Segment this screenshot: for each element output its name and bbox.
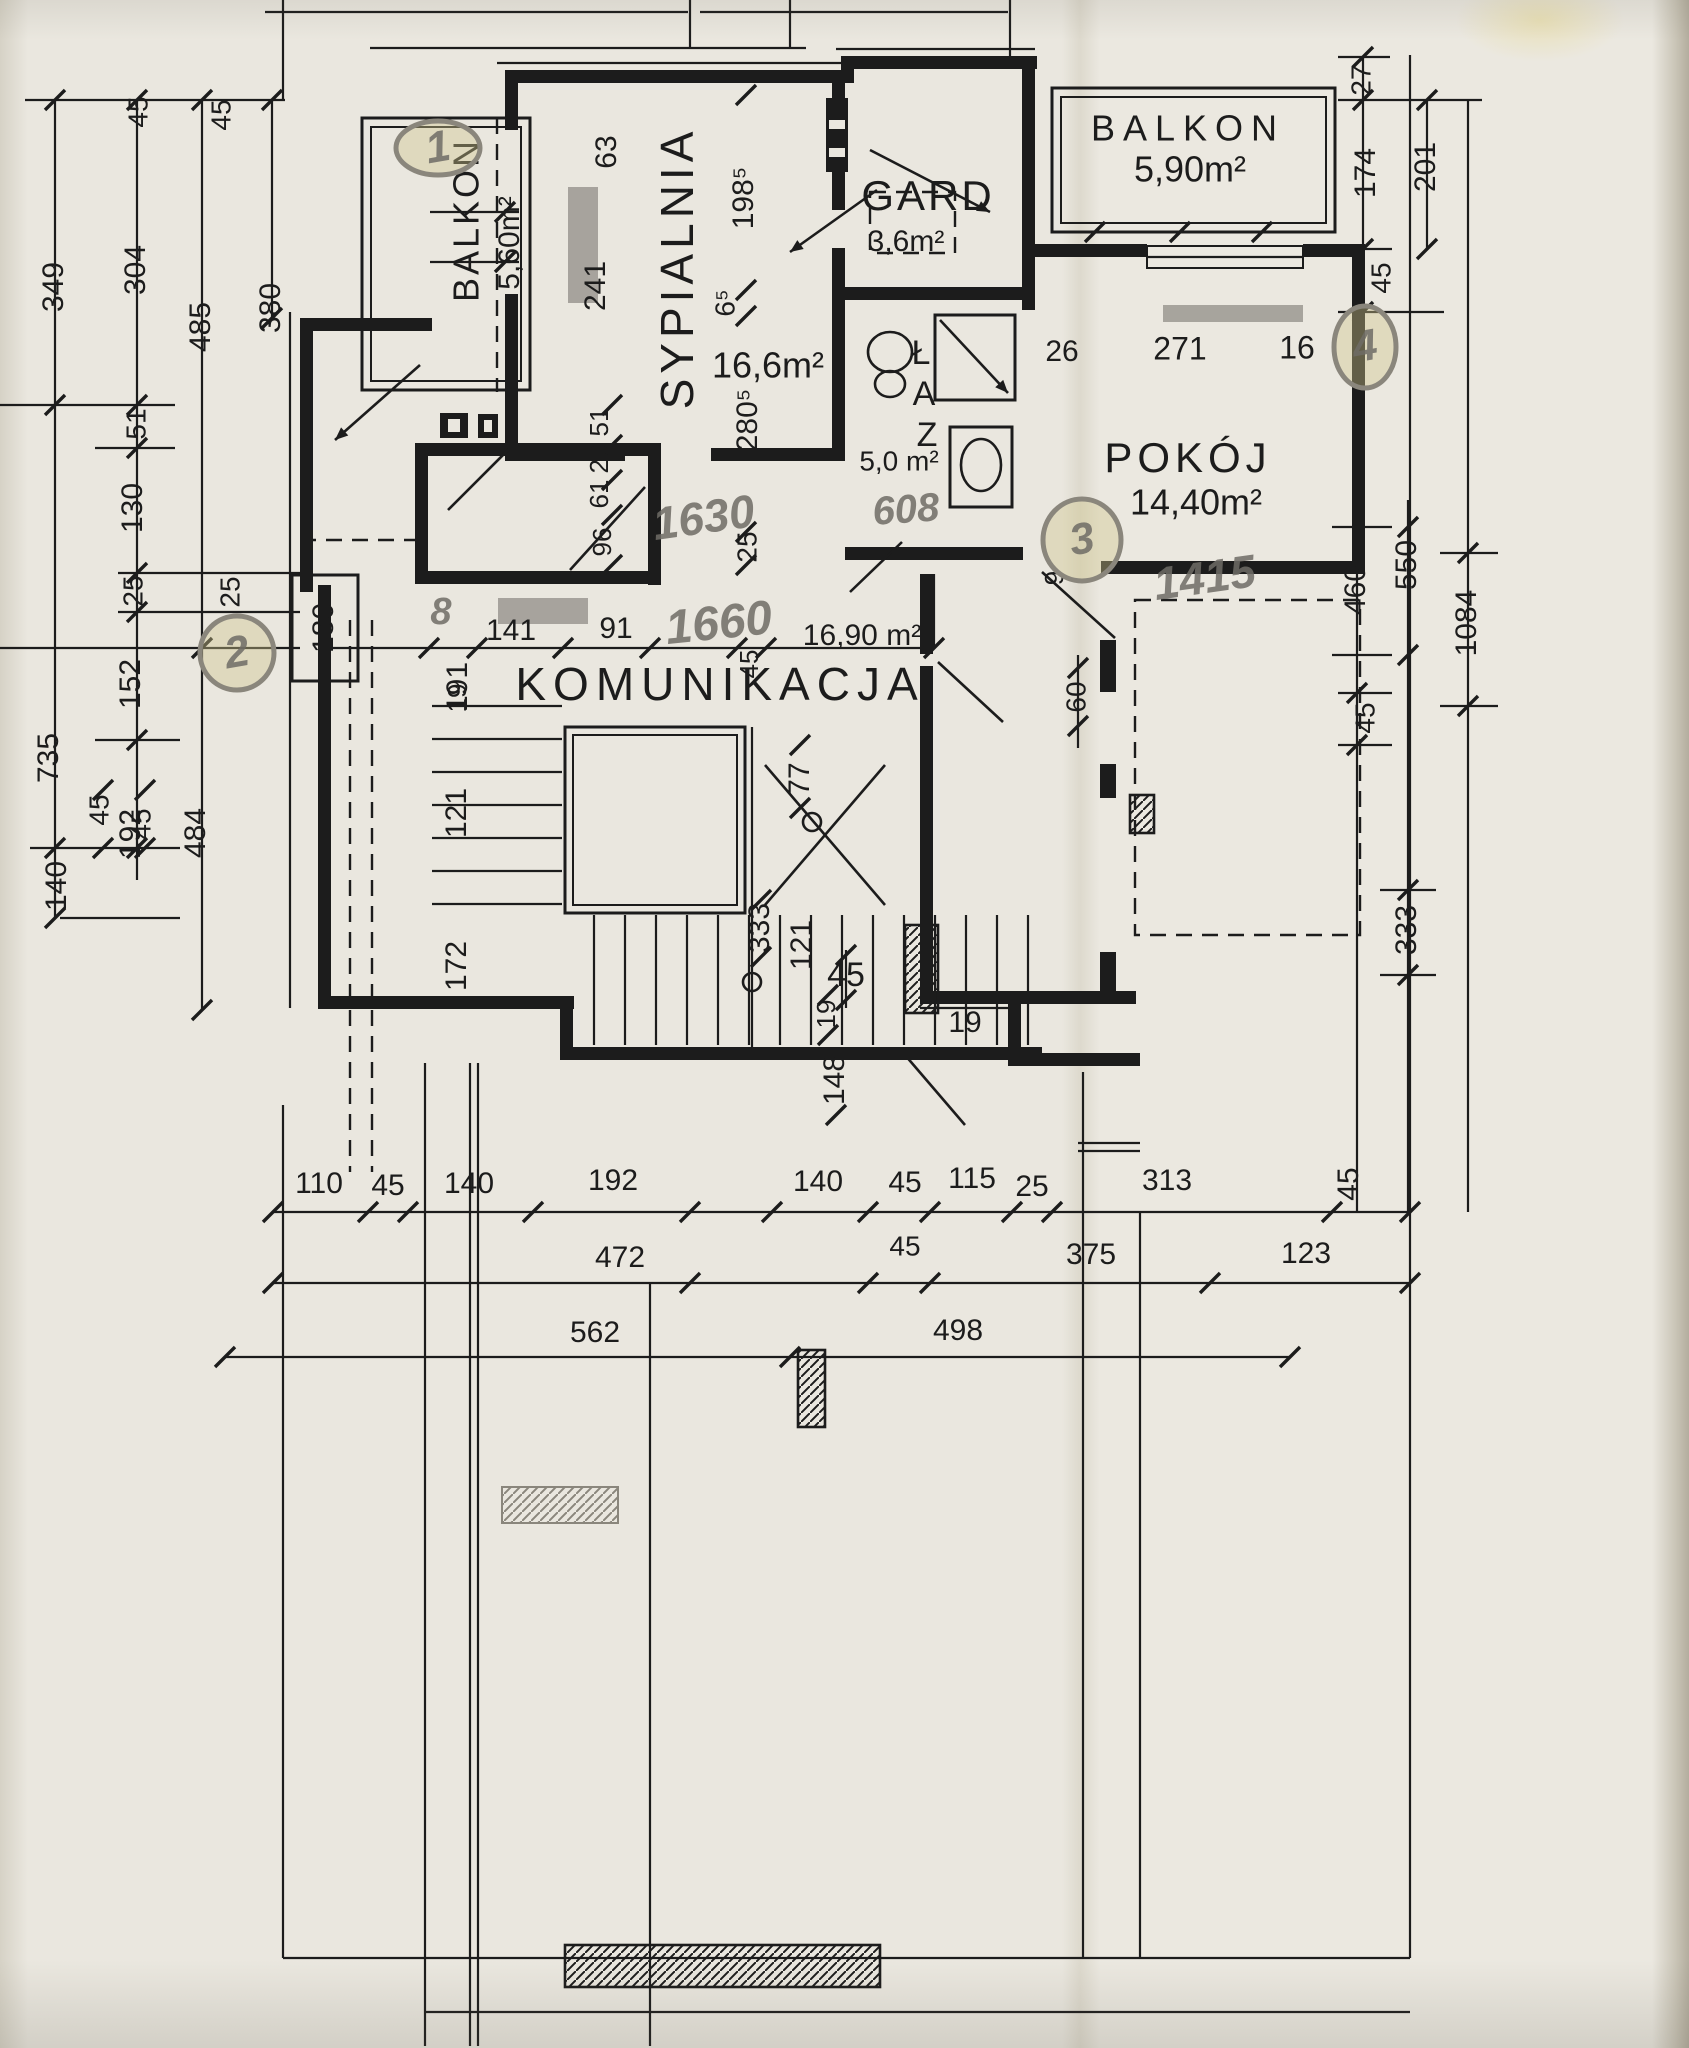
dim-label-198⁵: 198⁵: [727, 167, 760, 230]
dim-label-304: 304: [119, 245, 152, 295]
wall: [415, 571, 661, 584]
arrow-head: [790, 240, 804, 252]
solid-block-inner: [829, 148, 845, 157]
dim-label-141: 141: [486, 614, 536, 647]
hand-note-608: 608: [871, 485, 941, 534]
fixture-ellipse: [803, 813, 821, 831]
dim-label-60: 60: [1060, 681, 1091, 712]
dim-tick: [790, 735, 810, 755]
scanned-floor-plan-page: BALKON5,60m²SYPIALNIA16,6m²GARD3,6m²BALK…: [0, 0, 1689, 2048]
solid-block-inner: [484, 420, 492, 432]
dim-label-96: 96: [587, 528, 617, 557]
door-swing-line: [905, 1055, 965, 1125]
thin-outline: [565, 727, 745, 913]
dim-label-140: 140: [793, 1165, 843, 1198]
dim-label-115: 115: [948, 1162, 996, 1195]
door-swing-line: [448, 448, 510, 510]
hand-note-8: 8: [430, 591, 452, 633]
dashed-outline: [1135, 600, 1360, 935]
dim-label-26: 26: [1045, 335, 1078, 368]
dim-label-380: 380: [254, 283, 287, 333]
dim-label-20: 20: [584, 445, 614, 474]
wall: [841, 56, 854, 83]
dim-label-61: 61: [584, 480, 614, 509]
dim-label-25: 25: [117, 575, 148, 606]
room-label-sypialnia: SYPIALNIA: [651, 127, 703, 410]
dim-label-172: 172: [440, 941, 473, 991]
wall: [1035, 244, 1147, 257]
dim-label-550: 550: [1390, 540, 1423, 590]
door-swing-line: [940, 320, 1008, 393]
dim-label-51: 51: [584, 408, 614, 437]
dim-label-123: 123: [1281, 1237, 1331, 1270]
dim-tick: [736, 85, 756, 105]
hatched-block: [1130, 795, 1154, 833]
dim-label-16: 16: [1279, 329, 1315, 365]
dim-label-333: 333: [1390, 905, 1423, 955]
dim-label-110: 110: [295, 1167, 343, 1200]
wall: [1100, 952, 1116, 1004]
dim-label-19: 19: [948, 1006, 981, 1039]
dim-label-6⁵: 6⁵: [709, 289, 740, 316]
dim-label-45: 45: [371, 1169, 404, 1202]
dim-label-241: 241: [579, 261, 612, 311]
dim-label-333: 333: [743, 903, 776, 953]
dim-label-152: 152: [114, 659, 147, 709]
dim-label-562: 562: [570, 1316, 620, 1349]
dim-label-121: 121: [785, 920, 818, 970]
area-balkon-right: 5,90m²: [1134, 149, 1246, 190]
dim-label-1084: 1084: [1450, 590, 1483, 657]
dim-label-460: 460: [1339, 565, 1372, 615]
dim-label-121: 121: [440, 788, 473, 838]
dim-label-51: 51: [120, 408, 151, 439]
wall: [300, 318, 313, 592]
wall: [1100, 640, 1116, 692]
wall: [560, 996, 573, 1060]
wall: [845, 287, 1023, 300]
area-komunikacja: 16,90 m²: [803, 619, 921, 652]
dim-tick: [826, 1105, 846, 1125]
dim-label-148: 148: [818, 1055, 851, 1105]
dim-label-25: 25: [214, 576, 245, 607]
dim-label-140: 140: [40, 861, 73, 911]
dim-label-271: 271: [1153, 330, 1206, 366]
hatched-block: [565, 1945, 880, 1987]
pencil-hatch-block: [502, 1487, 618, 1523]
dim-label-735: 735: [32, 733, 65, 783]
dim-label-77: 77: [783, 762, 816, 795]
dim-label-91: 91: [599, 612, 632, 645]
room-label-laz-l: Ł: [912, 334, 931, 372]
wall: [845, 547, 1023, 560]
dim-label-201: 201: [1409, 142, 1442, 192]
fixture-ellipse: [875, 371, 905, 397]
dim-label-45: 45: [734, 650, 764, 679]
fixture-ellipse: [961, 439, 1001, 491]
room-label-balkon-right: BALKON: [1091, 108, 1285, 149]
wall: [832, 248, 845, 461]
dim-label-280⁵: 280⁵: [731, 389, 764, 452]
wall: [920, 574, 933, 654]
room-label-gard: GARD: [861, 172, 994, 219]
wall: [415, 443, 661, 456]
dim-label-45: 45: [1349, 702, 1380, 733]
dim-label-349: 349: [37, 262, 70, 312]
dim-label-140: 140: [444, 1167, 494, 1200]
dim-label-174: 174: [1349, 148, 1382, 198]
dim-label-45: 45: [889, 1230, 920, 1261]
dim-label-45: 45: [1332, 1167, 1365, 1200]
dim-label-192: 192: [588, 1164, 638, 1197]
wall: [318, 996, 574, 1009]
solid-block-inner: [829, 120, 845, 129]
room-label-komunikacja: KOMUNIKACJA: [515, 658, 924, 710]
dim-label-130: 130: [116, 483, 149, 533]
solid-block: [826, 98, 848, 172]
thin-outline: [573, 735, 737, 905]
wall: [560, 1047, 1042, 1060]
dim-label-498: 498: [933, 1314, 983, 1347]
wall: [505, 70, 853, 83]
dim-label-45: 45: [888, 1166, 921, 1199]
wall: [415, 456, 428, 571]
solid-block-inner: [448, 419, 460, 432]
hatched-block: [798, 1350, 825, 1427]
wall: [1100, 764, 1116, 798]
wall: [841, 56, 1037, 69]
area-sypialnia: 16,6m²: [712, 345, 824, 386]
dim-label-45: 45: [122, 96, 153, 127]
area-gard: 3,6m²: [868, 225, 945, 258]
dim-label-19: 19: [442, 684, 472, 713]
dim-label-313: 313: [1142, 1164, 1192, 1197]
hand-note-1660: 1660: [663, 591, 775, 655]
wall: [1022, 56, 1035, 310]
dim-label-45: 45: [827, 956, 865, 994]
hatched-block: [905, 925, 938, 1013]
room-label-pokoj: POKÓJ: [1104, 434, 1271, 481]
wall: [1008, 1004, 1021, 1060]
fixture-ellipse: [868, 332, 912, 372]
door-swing-line: [335, 365, 420, 440]
dim-label-19: 19: [811, 1000, 841, 1029]
dim-label-63: 63: [590, 135, 623, 168]
dim-label-485: 485: [184, 302, 217, 352]
dim-label-472: 472: [595, 1241, 645, 1274]
dim-label-45: 45: [125, 808, 156, 839]
pencil-shading: [1163, 305, 1303, 322]
floor-plan-drawing: BALKON5,60m²SYPIALNIA16,6m²GARD3,6m²BALK…: [0, 0, 1689, 2048]
dim-label-45: 45: [205, 99, 236, 130]
dim-label-45: 45: [83, 794, 114, 825]
dim-label-484: 484: [179, 808, 212, 858]
room-label-laz-a: A: [913, 375, 936, 413]
dim-label-375: 375: [1066, 1238, 1116, 1271]
area-pokoj: 14,40m²: [1130, 482, 1262, 523]
dim-label-180: 180: [307, 603, 340, 653]
dim-label-45: 45: [1365, 262, 1396, 293]
door-swing-line: [938, 662, 1003, 722]
area-laz: 5,0 m²: [859, 445, 938, 476]
area-balkon-left: 5,60m²: [493, 196, 526, 289]
dim-label-27: 27: [1345, 64, 1376, 95]
wall: [505, 294, 518, 461]
wall: [1008, 1053, 1140, 1066]
wall: [300, 318, 432, 331]
wall: [505, 70, 518, 130]
dim-label-25: 25: [1015, 1170, 1048, 1203]
